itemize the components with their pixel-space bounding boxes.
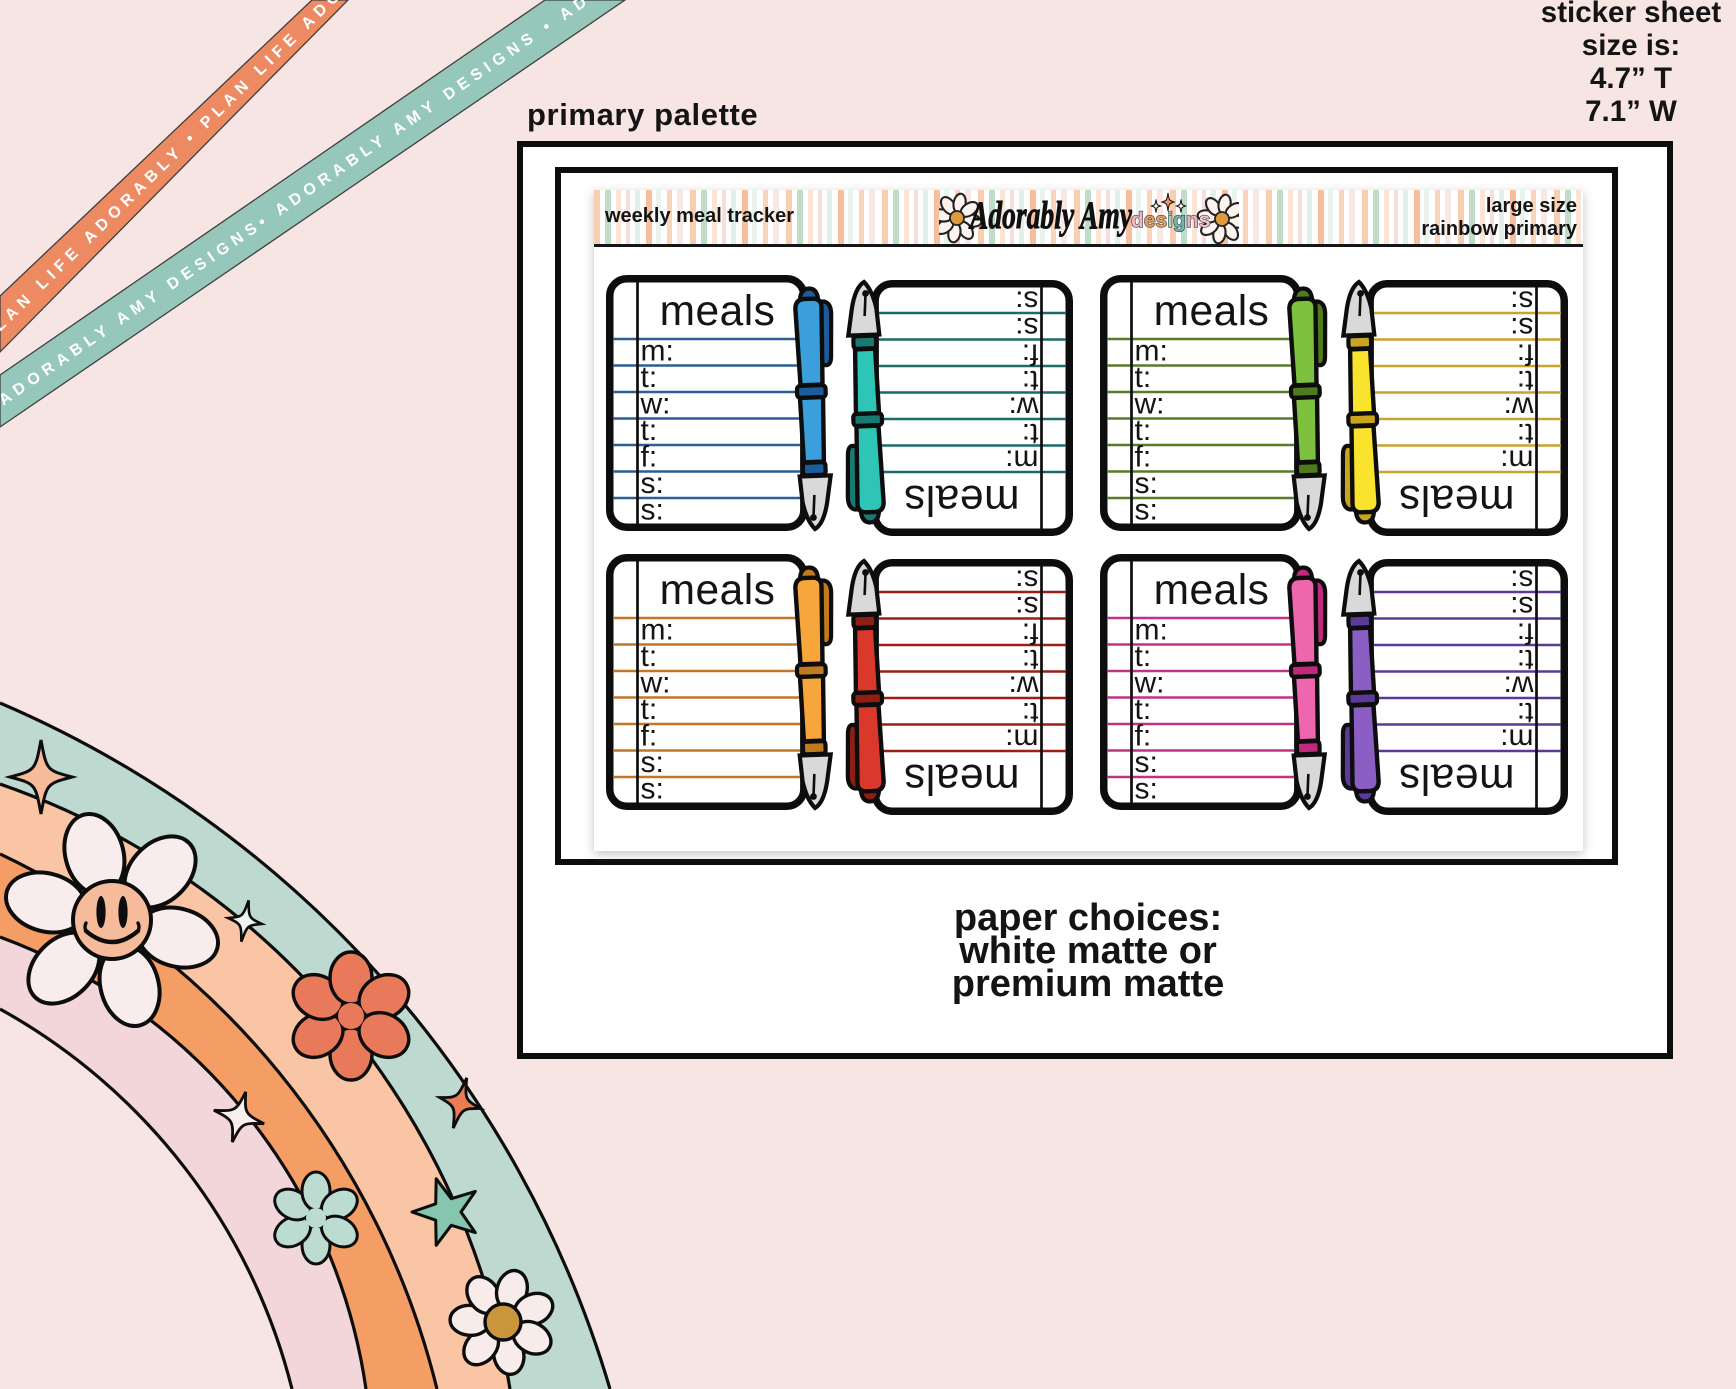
svg-text:meals: meals bbox=[660, 567, 776, 614]
svg-text:meals: meals bbox=[1154, 567, 1270, 614]
svg-text:Adorably Amy: Adorably Amy bbox=[968, 194, 1133, 237]
svg-text:meals: meals bbox=[1154, 288, 1270, 335]
svg-text:s:: s: bbox=[1015, 285, 1038, 318]
svg-text:s:: s: bbox=[1015, 564, 1038, 597]
svg-text:meals: meals bbox=[1399, 476, 1515, 523]
svg-text:s:: s: bbox=[1135, 773, 1158, 806]
svg-text:meals: meals bbox=[904, 476, 1020, 523]
svg-text:s:: s: bbox=[1510, 564, 1533, 597]
svg-text:s:: s: bbox=[641, 494, 664, 527]
svg-text:designs: designs bbox=[1131, 209, 1210, 232]
svg-text:s:: s: bbox=[1135, 494, 1158, 527]
svg-text:meals: meals bbox=[1399, 755, 1515, 802]
svg-text:meals: meals bbox=[904, 755, 1020, 802]
svg-text:meals: meals bbox=[660, 288, 776, 335]
svg-text:s:: s: bbox=[1510, 285, 1533, 318]
svg-text:s:: s: bbox=[641, 773, 664, 806]
